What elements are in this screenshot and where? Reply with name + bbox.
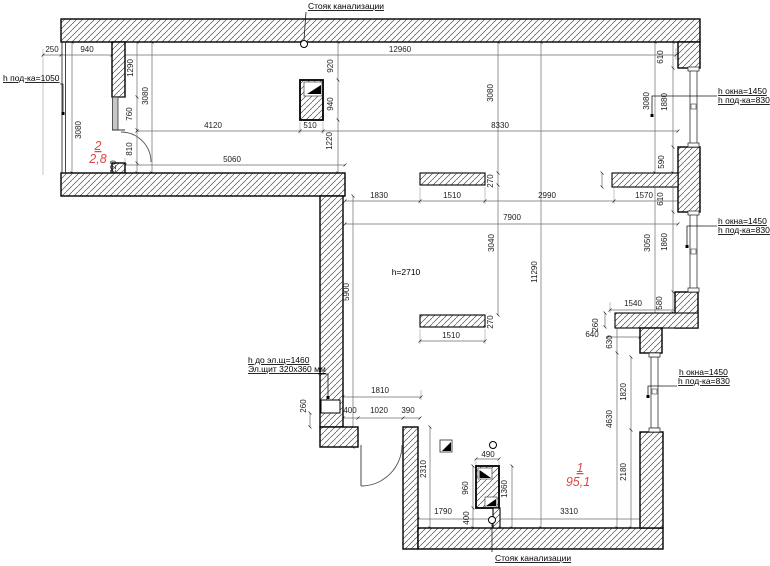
dimension-label: 1510 [443,191,461,200]
window-right-3 [649,353,660,432]
wall-stub-right-bottom [615,313,698,328]
dimension-label: 270 [486,174,495,188]
dimension-label: 3080 [642,92,651,110]
annotation-label: h под-ка=1050 [3,73,60,83]
dimension-label: 1020 [370,406,388,415]
wall-room2-bottom [61,173,345,196]
wall-right-step [640,328,662,353]
wall-left-main [320,196,343,427]
electrical-panel-box [321,400,340,413]
dimension-label: 1510 [442,331,460,340]
dimension-label: 920 [326,59,335,73]
dimension-label: 630 [605,335,614,349]
dimension-label: 610 [656,192,665,206]
dimension-label: 4120 [204,121,222,130]
dimension-label: 400 [343,406,357,415]
dimension-label: 2990 [538,191,556,200]
dimension-label: 3310 [560,507,578,516]
annotation-label: h под-ка=830 [678,376,730,386]
room-label: 1 [577,461,584,475]
wall-bottom [418,528,663,549]
annotation-label: Эл.щит 320x360 мм [248,364,326,374]
room-label: 95,1 [566,475,590,489]
dimension-label: 1360 [500,480,509,498]
sewer-riser-circle-bottom [489,517,496,524]
dimension-label: 1790 [434,507,452,516]
floor-plan-page: 2509401296012903080760810220308092094051… [0,0,770,566]
riser-circle-middle [490,442,497,449]
dimension-label: 810 [125,142,134,156]
wall-top [61,19,700,42]
window-right-1 [688,67,699,147]
annotation-label: h под-ка=830 [718,95,770,105]
annotation-label: h=2710 [392,267,421,277]
wall-right-b [678,147,700,212]
dimension-label: 3080 [74,121,83,139]
window-room2-partition [113,97,119,130]
dimension-label: 1290 [126,59,135,77]
dimension-label: 3040 [487,234,496,252]
dimension-label: 940 [80,45,94,54]
dimension-label: 1820 [619,383,628,401]
floor-plan-drawing: 2509401296012903080760810220308092094051… [0,0,770,566]
dimension-label: 1220 [325,132,334,150]
window-right-2 [688,211,699,292]
dimension-label: 960 [461,481,470,495]
wall-stub-mid-bottom [420,315,485,327]
wall-right-a [678,42,700,68]
wall-entry-left [320,427,358,447]
dimension-label: 1570 [635,191,653,200]
annotation-label: Стояк канализации [308,1,384,11]
dimension-label: 940 [326,97,335,111]
wall-bottom-section-right [640,432,663,528]
dimension-label: 580 [655,296,664,310]
dimension-label: 11290 [530,261,539,283]
dimension-label: 490 [481,450,495,459]
dimension-label: 400 [462,511,471,525]
dimension-label: 8330 [491,121,509,130]
dimension-label: 1860 [660,233,669,251]
dimension-label: 1810 [371,386,389,395]
dimension-label: 4630 [605,410,614,428]
dimension-label: 1880 [660,93,669,111]
room-label: 2,8 [88,152,106,166]
dimension-label: 1830 [370,191,388,200]
wall-bottom-section-left [403,427,418,549]
dimension-label: 2310 [419,460,428,478]
dimension-label: 12960 [389,45,412,54]
dimension-label: 610 [656,50,665,64]
dimension-label: 3050 [643,234,652,252]
dimension-label: 5900 [342,283,351,301]
sewer-riser-circle-top [301,41,308,48]
annotation-label: Стояк канализации [495,553,571,563]
wall-stub-right-top [612,173,678,187]
dimension-label: 3080 [486,84,495,102]
dimension-label: 3080 [141,87,150,105]
dimension-label: 5060 [223,155,241,164]
wall-partition-room2 [112,42,125,97]
dimension-label: 390 [401,406,415,415]
dimension-label: 7900 [503,213,521,222]
dimension-label: 1540 [624,299,642,308]
wall-stub-mid-top [420,173,485,185]
dimension-label: 2180 [619,463,628,481]
dimension-label: 250 [45,45,59,54]
dimension-label: 590 [657,155,666,169]
dimension-label: 260 [299,399,308,413]
dimension-label: 220 [109,160,118,174]
room-label: 2 [94,139,102,153]
dimension-label: 510 [303,121,317,130]
annotation-label: h под-ка=830 [718,225,770,235]
dimension-label: 270 [486,315,495,329]
dimension-label: 760 [125,107,134,121]
dimension-label: 640 [585,330,599,339]
